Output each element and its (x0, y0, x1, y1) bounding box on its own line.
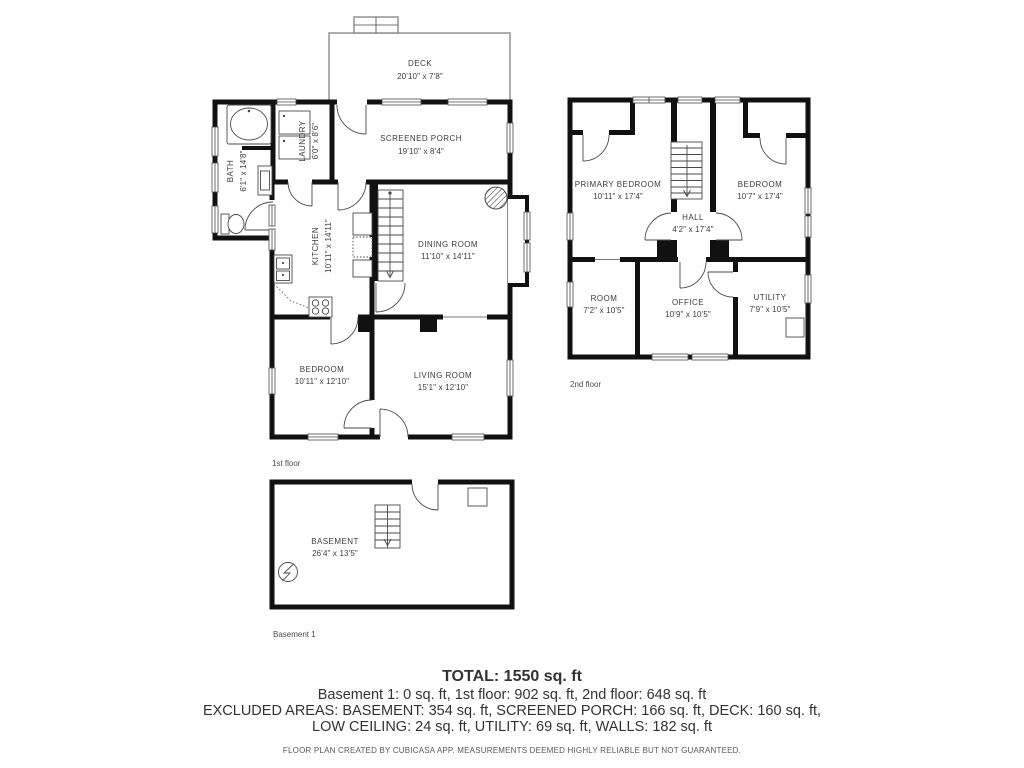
room-dims: 20'10" x 7'8" (397, 72, 443, 81)
basement-plan: BASEMENT 26'4" x 13'5" Basement 1 (272, 479, 512, 640)
room-label: BEDROOM (738, 180, 783, 189)
excluded-areas-line2: LOW CEILING: 24 sq. ft, UTILITY: 69 sq. … (0, 719, 1024, 735)
area-summary: TOTAL: 1550 sq. ft Basement 1: 0 sq. ft,… (0, 668, 1024, 735)
room-label: BEDROOM (300, 365, 345, 374)
room-dims: 6'1" x 14'8" (239, 150, 248, 191)
floor-label-basement: Basement 1 (273, 630, 316, 639)
room-dims: 10'11" x 14'11" (324, 219, 333, 273)
room-label: KITCHEN (311, 227, 320, 265)
staircase-basement (375, 505, 400, 548)
floor-plan-drawing: DECK 20'10" x 7'8" SCREENED PORCH 19'10"… (0, 0, 1024, 768)
water-heater (786, 318, 804, 337)
room-label: DECK (408, 59, 432, 68)
floor-label-second: 2nd floor (570, 380, 601, 389)
room-label: SCREENED PORCH (380, 134, 462, 143)
room-dims: 10'11" x 17'4" (593, 192, 643, 201)
toilet (221, 214, 244, 234)
room-dims: 26'4" x 13'5" (312, 549, 358, 558)
stair-wall (372, 182, 378, 281)
excluded-areas-line1: EXCLUDED AREAS: BASEMENT: 354 sq. ft, SC… (0, 703, 1024, 719)
floor-plan-page: DECK 20'10" x 7'8" SCREENED PORCH 19'10"… (0, 0, 1024, 768)
kitchen-sink (274, 255, 292, 283)
staircase-first-floor (378, 190, 403, 281)
room-dims: 10'11" x 12'10" (295, 377, 349, 386)
room-label: LAUNDRY (298, 120, 307, 161)
bathtub (227, 105, 271, 144)
room-dims: 15'1" x 12'10" (418, 383, 468, 392)
chimney-block (713, 240, 729, 258)
utility-box (468, 488, 487, 506)
room-label: LIVING ROOM (414, 371, 472, 380)
room-dims: 7'9" x 10'5" (749, 305, 790, 314)
floor-label-first: 1st floor (272, 459, 301, 468)
deck-stairs (354, 17, 398, 33)
footer-disclaimer: FLOOR PLAN CREATED BY CUBICASA APP. MEAS… (0, 746, 1024, 755)
room-label: PRIMARY BEDROOM (575, 180, 661, 189)
bath-half-wall (242, 146, 273, 150)
floor-areas: Basement 1: 0 sq. ft, 1st floor: 902 sq.… (0, 687, 1024, 703)
room-label: DINING ROOM (418, 240, 478, 249)
room-label: BASEMENT (311, 537, 359, 546)
room-label: UTILITY (754, 293, 787, 302)
room-dims: 6'0" x 8'6" (311, 123, 320, 160)
room-dims: 11'10" x 14'11" (421, 252, 475, 261)
bath-sink (258, 166, 272, 195)
chimney-block (358, 315, 371, 332)
hatched-circle-symbol (485, 187, 507, 209)
kitchen-cabinets (353, 213, 372, 277)
room-dims: 7'2" x 10'5" (583, 306, 624, 315)
total-area: TOTAL: 1550 sq. ft (0, 668, 1024, 686)
room-dims: 10'9" x 10'5" (665, 310, 711, 319)
first-floor-plan: DECK 20'10" x 7'8" SCREENED PORCH 19'10"… (212, 17, 530, 468)
room-label: ROOM (591, 294, 618, 303)
room-dims: 4'2" x 17'4" (672, 225, 713, 234)
room-label: BATH (226, 160, 235, 183)
second-floor-plan: PRIMARY BEDROOM 10'11" x 17'4" BEDROOM 1… (567, 97, 811, 389)
stove (309, 297, 332, 317)
room-label: HALL (682, 213, 704, 222)
chimney-block (657, 240, 673, 258)
room-dims: 10'7" x 17'4" (737, 192, 783, 201)
room-dims: 19'10" x 8'4" (398, 147, 444, 156)
room-label: OFFICE (672, 298, 704, 307)
electrical-panel-icon (279, 563, 298, 582)
chimney-block (420, 315, 437, 332)
staircase-second-floor (671, 142, 702, 199)
